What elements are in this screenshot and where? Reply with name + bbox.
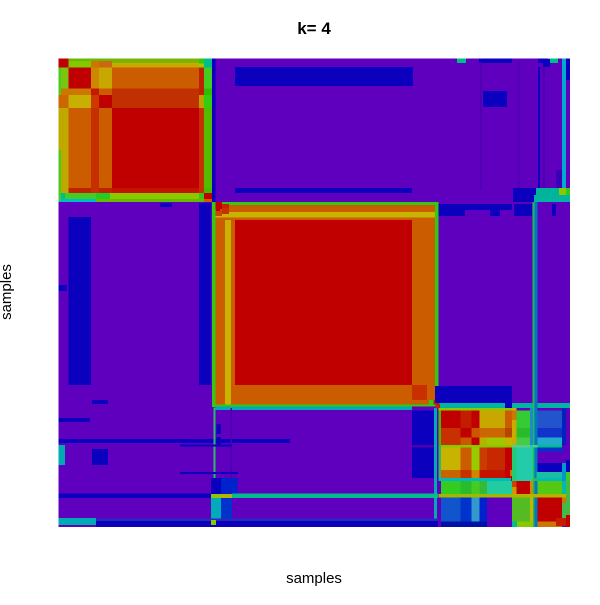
- svg-text:k= 4: k= 4: [297, 19, 331, 38]
- svg-text:samples: samples: [286, 570, 342, 587]
- svg-text:samples: samples: [0, 264, 15, 320]
